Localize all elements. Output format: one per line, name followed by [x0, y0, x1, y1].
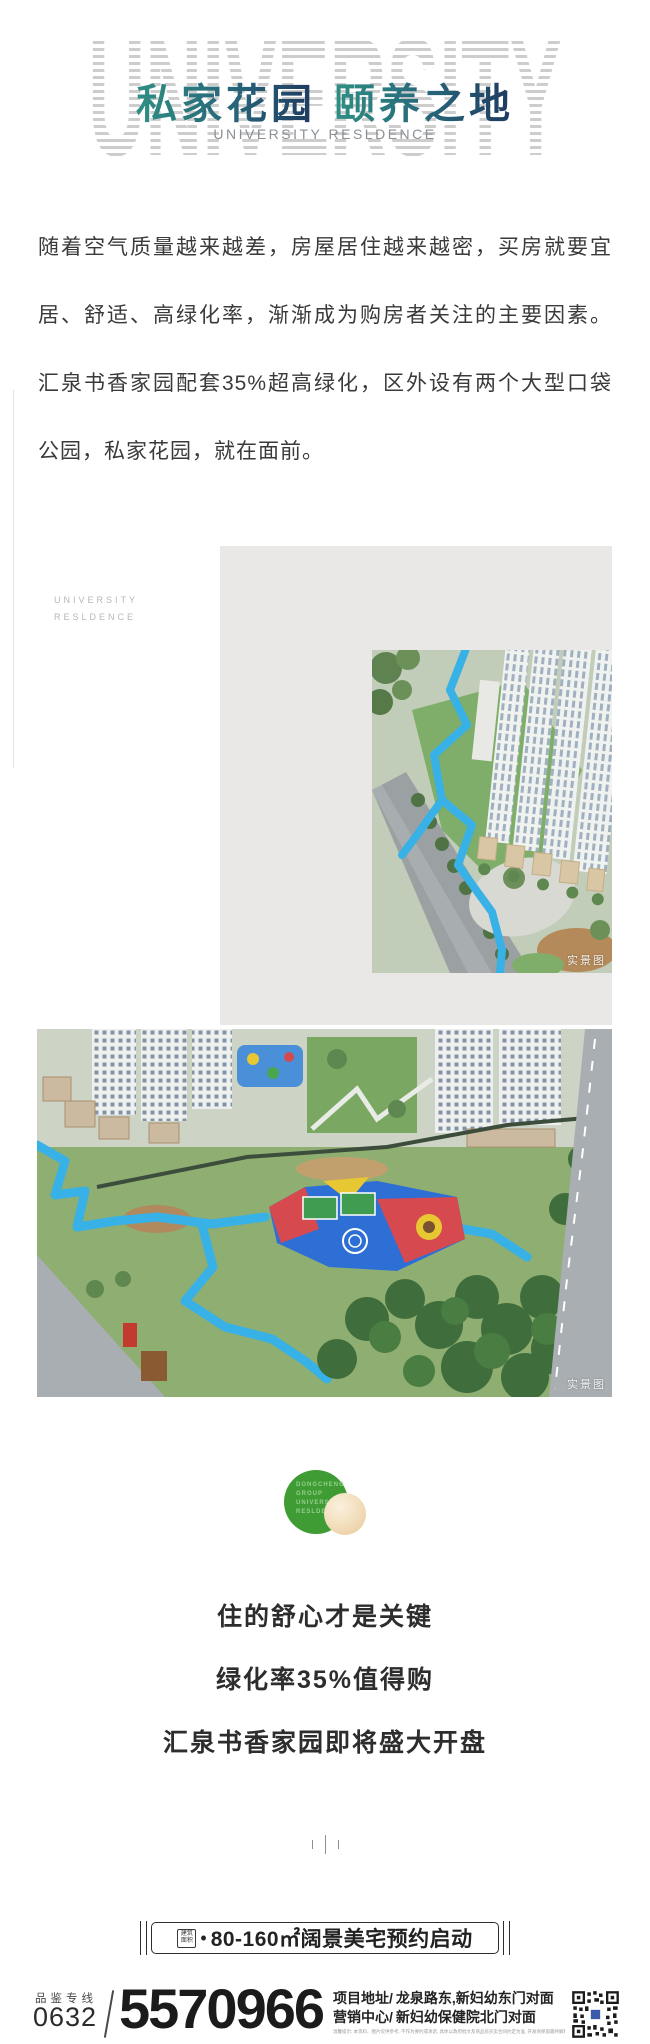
address1-value: 龙泉路东,新妇幼东门对面 [396, 1990, 554, 2006]
poster-page: UNIVERSITY 私家花园颐养之地 UNIVERSITY RESLDENCE… [0, 0, 650, 2044]
address-block: 项目地址/龙泉路东,新妇幼东门对面 营销中心/新妇幼保健院北门对面 [333, 1989, 565, 2027]
phone-number: 5570966 [119, 1981, 323, 2037]
qr-code-svg [571, 1990, 620, 2039]
banner-box: 建筑 面积 • 80-160㎡阔景美宅预约启动 [151, 1922, 499, 1954]
slogan-line-3: 汇泉书香家园即将盛大开盘 [0, 1712, 650, 1775]
floor-area-seal: 建筑 面积 [177, 1929, 196, 1948]
photo-towers-aerial: 实景图 [372, 650, 612, 973]
banner-endcap-right [503, 1921, 510, 1955]
slogan-line-1: 住的舒心才是关键 [0, 1586, 650, 1649]
disclaimer-fineprint: 温馨提示: 本资料、图片仅供参考, 不作为要约或承诺, 具体以政府批文及商品房买… [333, 2029, 565, 2035]
phone-area-code: 0632 [33, 2002, 97, 2033]
side-label: UNIVERSITY RESLDENCE [54, 592, 138, 626]
slogan-line-2: 绿化率35%值得购 [0, 1649, 650, 1712]
footer-slash-divider [104, 1990, 114, 2038]
intro-line: 随着空气质量越来越差，房屋居住越来越密，买房就要宜 [38, 214, 612, 282]
photo1-watermark: 实景图 [567, 952, 606, 968]
page-title: 私家花园颐养之地 [0, 70, 650, 130]
photo2-aerial-svg [37, 1029, 612, 1397]
left-vertical-rule [13, 390, 14, 768]
photo1-aerial-svg [372, 650, 612, 973]
banner-bullet: • [200, 1929, 206, 1947]
intro-line: 公园，私家花园，就在面前。 [38, 418, 612, 486]
seal-line: 面积 [181, 1938, 193, 1945]
seal-line: 建筑 [181, 1931, 193, 1938]
address1-label: 项目地址/ [333, 1990, 393, 2006]
address2-label: 营销中心/ [333, 2009, 393, 2025]
logo-line: DONGCHENG [296, 1481, 348, 1490]
banner-text: 80-160㎡阔景美宅预约启动 [211, 1923, 473, 1953]
address2-value: 新妇幼保健院北门对面 [396, 2009, 536, 2025]
banner-endcap-left [140, 1921, 147, 1955]
page-subtitle: UNIVERSITY RESLDENCE [0, 126, 650, 142]
intro-line: 居、舒适、高绿化率，渐渐成为购房者关注的主要因素。 [38, 282, 612, 350]
brand-logo-beige-circle [324, 1493, 366, 1535]
slogan-block: 住的舒心才是关键 绿化率35%值得购 汇泉书香家园即将盛大开盘 [0, 1586, 650, 1775]
title-right: 颐养之地 [334, 81, 514, 127]
promo-banner: 建筑 面积 • 80-160㎡阔景美宅预约启动 [140, 1921, 510, 1955]
intro-line: 汇泉书香家园配套35%超高绿化，区外设有两个大型口袋 [38, 350, 612, 418]
intro-paragraph: 随着空气质量越来越差，房屋居住越来越密，买房就要宜 居、舒适、高绿化率，渐渐成为… [38, 214, 612, 486]
side-label-line2: RESLDENCE [54, 609, 138, 626]
qr-code [571, 1990, 620, 2039]
divider-bars [0, 1834, 650, 1854]
title-left: 私家花园 [136, 81, 316, 127]
side-label-line1: UNIVERSITY [54, 592, 138, 609]
photo-park-aerial: 实景图 [37, 1029, 612, 1397]
address-row-2: 营销中心/新妇幼保健院北门对面 [333, 2008, 565, 2027]
address-row-1: 项目地址/龙泉路东,新妇幼东门对面 [333, 1989, 565, 2008]
photo2-watermark: 实景图 [567, 1376, 606, 1392]
